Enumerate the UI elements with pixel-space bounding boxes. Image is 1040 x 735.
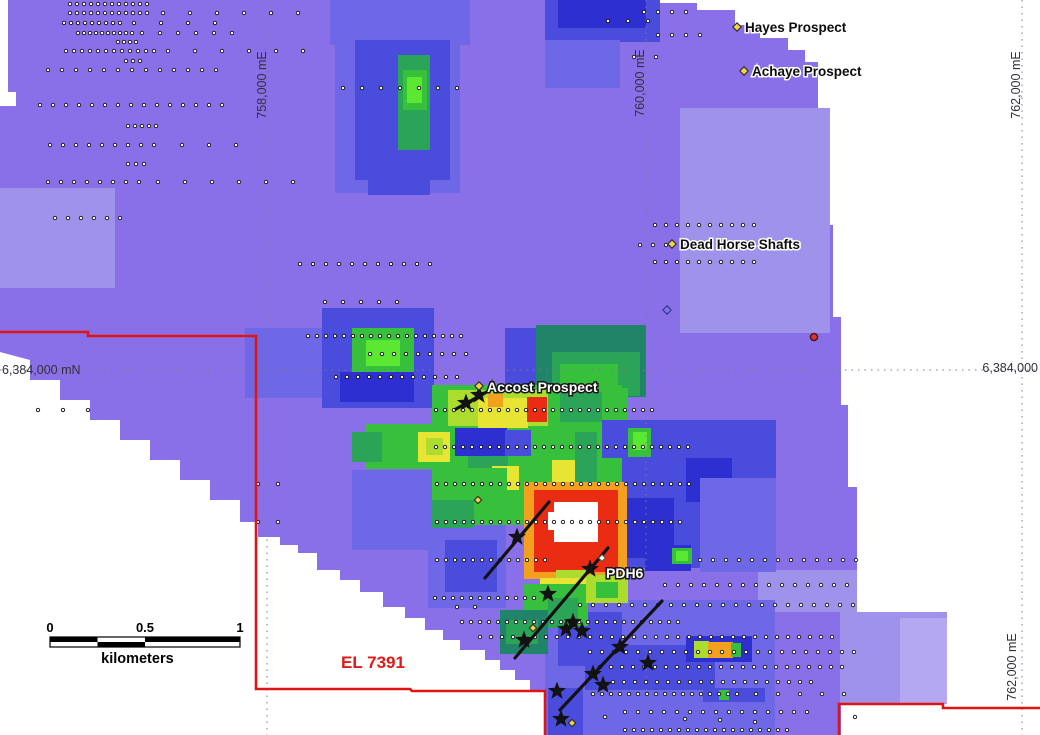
sample-dot xyxy=(752,665,755,668)
sample-dot xyxy=(134,40,137,43)
sample-dot xyxy=(609,665,612,668)
sample-dot xyxy=(643,603,646,606)
sample-dot xyxy=(515,408,518,411)
sample-dot xyxy=(82,31,85,34)
sample-dot xyxy=(627,692,630,695)
sample-dot xyxy=(138,59,141,62)
sample-dot xyxy=(731,635,734,638)
sample-dot xyxy=(124,31,127,34)
sample-dot xyxy=(337,262,340,265)
sample-dot xyxy=(487,596,490,599)
sample-dot xyxy=(432,334,435,337)
sample-dot xyxy=(719,260,722,263)
sample-dot xyxy=(600,650,603,653)
heat-cell xyxy=(245,328,330,398)
sample-dot xyxy=(75,2,78,5)
sample-dot xyxy=(523,596,526,599)
sample-dot xyxy=(682,603,685,606)
sample-dot xyxy=(676,635,679,638)
sample-dot xyxy=(597,482,600,485)
sample-dot xyxy=(678,520,681,523)
sample-dot xyxy=(387,334,390,337)
sample-dot xyxy=(588,482,591,485)
sample-dot xyxy=(578,408,581,411)
sample-dot xyxy=(131,2,134,5)
sample-dot xyxy=(441,334,444,337)
sample-dot xyxy=(525,558,528,561)
sample-dot xyxy=(711,558,714,561)
sample-dot xyxy=(626,19,629,22)
sample-dot xyxy=(624,520,627,523)
sample-dot xyxy=(670,33,673,36)
sample-dot xyxy=(543,520,546,523)
heat-cell xyxy=(602,420,624,458)
sample-dot xyxy=(851,603,854,606)
sample-dot xyxy=(698,635,701,638)
sample-dot xyxy=(807,665,810,668)
sample-dot xyxy=(497,445,500,448)
sample-dot xyxy=(455,605,458,608)
sample-dot xyxy=(641,728,644,731)
heat-cell xyxy=(488,394,503,407)
sample-dot xyxy=(623,728,626,731)
sample-dot xyxy=(741,260,744,263)
sample-dot xyxy=(688,710,691,713)
occurrence-circle-icon xyxy=(810,333,817,340)
sample-dot xyxy=(443,445,446,448)
sample-dot xyxy=(666,680,669,683)
sample-dot xyxy=(90,103,93,106)
sample-dot xyxy=(166,49,169,52)
sample-dot xyxy=(460,620,463,623)
sample-dot xyxy=(695,603,698,606)
sample-dot xyxy=(766,710,769,713)
scalebar-segment xyxy=(98,642,146,647)
sample-dot xyxy=(675,710,678,713)
scalebar-segment xyxy=(145,637,240,642)
sample-dot xyxy=(620,665,623,668)
sample-dot xyxy=(570,482,573,485)
sample-dot xyxy=(695,728,698,731)
sample-dot xyxy=(676,583,679,586)
sample-dot xyxy=(131,59,134,62)
sample-dot xyxy=(234,143,237,146)
sample-dot xyxy=(138,2,141,5)
sample-dot xyxy=(104,49,107,52)
scalebar-tick-label: 0.5 xyxy=(136,620,154,635)
sample-dot xyxy=(207,143,210,146)
sample-dot xyxy=(533,408,536,411)
sample-dot xyxy=(392,352,395,355)
sample-dot xyxy=(154,124,157,127)
sample-dot xyxy=(291,180,294,183)
sample-dot xyxy=(168,103,171,106)
sample-dot xyxy=(51,103,54,106)
sample-dot xyxy=(82,2,85,5)
sample-dot xyxy=(588,650,591,653)
sample-dot xyxy=(46,180,49,183)
sample-dot xyxy=(110,2,113,5)
sample-dot xyxy=(646,19,649,22)
sample-dot xyxy=(708,650,711,653)
map-view: Hayes ProspectAchaye ProspectDead Horse … xyxy=(0,0,1040,735)
sample-dot xyxy=(656,33,659,36)
sample-dot xyxy=(156,180,159,183)
sample-dot xyxy=(632,408,635,411)
sample-dot xyxy=(210,180,213,183)
sample-dot xyxy=(840,665,843,668)
sample-dot xyxy=(591,692,594,695)
sample-dot xyxy=(404,352,407,355)
sample-dot xyxy=(597,520,600,523)
sample-dot xyxy=(436,86,439,89)
sample-dot xyxy=(591,603,594,606)
heat-cell xyxy=(455,428,507,456)
sample-dot xyxy=(570,520,573,523)
sample-dot xyxy=(724,558,727,561)
sample-dot xyxy=(708,223,711,226)
sample-dot xyxy=(489,482,492,485)
sample-dot xyxy=(172,68,175,71)
sample-dot xyxy=(471,482,474,485)
sample-dot xyxy=(488,445,491,448)
heat-cell xyxy=(558,0,646,28)
sample-dot xyxy=(737,558,740,561)
sample-dot xyxy=(416,352,419,355)
sample-dot xyxy=(478,596,481,599)
heat-cell xyxy=(0,188,115,288)
sample-dot xyxy=(799,603,802,606)
sample-dot xyxy=(741,583,744,586)
sample-dot xyxy=(550,620,553,623)
sample-dot xyxy=(534,558,537,561)
heat-cell xyxy=(0,92,16,106)
grid-coordinate-label: 760,000 mE xyxy=(633,49,647,116)
sample-dot xyxy=(194,103,197,106)
sample-dot xyxy=(433,596,436,599)
sample-dot xyxy=(854,558,857,561)
sample-dot xyxy=(129,103,132,106)
sample-dot xyxy=(498,520,501,523)
sample-dot xyxy=(818,665,821,668)
sample-dot xyxy=(105,216,108,219)
scalebar-units-label: kilometers xyxy=(101,651,174,667)
sample-dot xyxy=(773,603,776,606)
heat-cell xyxy=(731,643,741,657)
sample-dot xyxy=(765,680,768,683)
sample-dot xyxy=(819,583,822,586)
sample-dot xyxy=(654,635,657,638)
sample-dot xyxy=(88,49,91,52)
sample-dot xyxy=(451,596,454,599)
sample-dot xyxy=(76,31,79,34)
sample-dot xyxy=(194,31,197,34)
sample-dot xyxy=(113,143,116,146)
sample-dot xyxy=(812,603,815,606)
sample-dot xyxy=(677,728,680,731)
sample-dot xyxy=(815,558,818,561)
sample-dot xyxy=(103,11,106,14)
sample-dot xyxy=(644,680,647,683)
sample-dot xyxy=(130,31,133,34)
sample-dot xyxy=(470,445,473,448)
sample-dot xyxy=(133,124,136,127)
sample-dot xyxy=(134,162,137,165)
sample-dot xyxy=(77,103,80,106)
sample-dot xyxy=(433,375,436,378)
tenement-label: EL 7391 xyxy=(341,653,405,672)
sample-dot xyxy=(606,19,609,22)
sample-dot xyxy=(144,49,147,52)
sample-dot xyxy=(479,408,482,411)
sample-dot xyxy=(701,710,704,713)
sample-dot xyxy=(68,2,71,5)
sample-dot xyxy=(622,680,625,683)
sample-dot xyxy=(710,680,713,683)
sample-dot xyxy=(496,620,499,623)
sample-dot xyxy=(569,445,572,448)
sample-dot xyxy=(97,21,100,24)
sample-dot xyxy=(819,635,822,638)
sample-dot xyxy=(124,59,127,62)
sample-dot xyxy=(405,334,408,337)
sample-dot xyxy=(59,180,62,183)
sample-dot xyxy=(816,650,819,653)
sample-dot xyxy=(116,103,119,106)
sample-dot xyxy=(435,558,438,561)
sample-dot xyxy=(478,620,481,623)
sample-dot xyxy=(88,68,91,71)
sample-dot xyxy=(756,650,759,653)
sample-dot xyxy=(138,11,141,14)
sample-dot xyxy=(708,260,711,263)
sample-dot xyxy=(752,223,755,226)
sample-dot xyxy=(96,2,99,5)
sample-dot xyxy=(596,408,599,411)
sample-dot xyxy=(422,375,425,378)
sample-dot xyxy=(792,710,795,713)
sample-dot xyxy=(363,262,366,265)
sample-dot xyxy=(142,103,145,106)
sample-dot xyxy=(473,605,476,608)
sample-dot xyxy=(650,728,653,731)
sample-dot xyxy=(727,710,730,713)
heat-cell xyxy=(352,470,432,550)
sample-dot xyxy=(69,21,72,24)
sample-dot xyxy=(514,620,517,623)
sample-dot xyxy=(560,408,563,411)
sample-dot xyxy=(632,728,635,731)
sample-dot xyxy=(435,482,438,485)
sample-dot xyxy=(605,445,608,448)
sample-dot xyxy=(83,21,86,24)
heat-cell xyxy=(545,40,620,88)
sample-dot xyxy=(730,665,733,668)
sample-dot xyxy=(126,162,129,165)
sample-dot xyxy=(660,482,663,485)
sample-dot xyxy=(622,620,625,623)
sample-dot xyxy=(806,583,809,586)
heat-cell xyxy=(560,392,602,422)
sample-dot xyxy=(721,603,724,606)
sample-dot xyxy=(505,620,508,623)
heat-cell xyxy=(596,582,618,598)
sample-dot xyxy=(614,445,617,448)
sample-dot xyxy=(684,10,687,13)
sample-dot xyxy=(350,262,353,265)
sample-dot xyxy=(276,482,279,485)
sample-dot xyxy=(543,482,546,485)
sample-dot xyxy=(207,103,210,106)
sample-dot xyxy=(804,650,807,653)
sample-dot xyxy=(678,482,681,485)
sample-dot xyxy=(324,334,327,337)
scalebar-tick-label: 0 xyxy=(46,620,53,635)
sample-dot xyxy=(126,124,129,127)
sample-dot xyxy=(453,558,456,561)
sample-dot xyxy=(760,603,763,606)
sample-dot xyxy=(417,86,420,89)
sample-dot xyxy=(732,650,735,653)
sample-dot xyxy=(100,31,103,34)
sample-dot xyxy=(659,728,662,731)
sample-dot xyxy=(542,408,545,411)
sample-dot xyxy=(124,2,127,5)
sample-dot xyxy=(96,49,99,52)
sample-dot xyxy=(53,216,56,219)
sample-dot xyxy=(145,11,148,14)
sample-dot xyxy=(852,650,855,653)
sample-dot xyxy=(464,352,467,355)
sample-dot xyxy=(274,49,277,52)
sample-dot xyxy=(653,223,656,226)
sample-dot xyxy=(496,596,499,599)
sample-dot xyxy=(301,49,304,52)
sample-dot xyxy=(434,408,437,411)
sample-dot xyxy=(85,180,88,183)
sample-dot xyxy=(36,408,39,411)
sample-dot xyxy=(516,482,519,485)
sample-dot xyxy=(789,558,792,561)
sample-dot xyxy=(841,558,844,561)
sample-dot xyxy=(72,180,75,183)
sample-dot xyxy=(104,21,107,24)
sample-dot xyxy=(676,620,679,623)
sample-dot xyxy=(753,635,756,638)
sample-dot xyxy=(158,68,161,71)
sample-dot xyxy=(389,262,392,265)
sample-dot xyxy=(617,603,620,606)
sample-dot xyxy=(588,520,591,523)
sample-dot xyxy=(116,40,119,43)
sample-dot xyxy=(106,31,109,34)
sample-dot xyxy=(611,680,614,683)
sample-dot xyxy=(469,620,472,623)
sample-dot xyxy=(471,520,474,523)
sample-dot xyxy=(797,635,800,638)
sample-dot xyxy=(88,31,91,34)
sample-dot xyxy=(102,68,105,71)
sample-dot xyxy=(434,445,437,448)
grid-coordinate-label: 762,000 mE xyxy=(1009,51,1023,118)
sample-dot xyxy=(631,620,634,623)
sample-dot xyxy=(609,692,612,695)
sample-dot xyxy=(588,635,591,638)
sample-dot xyxy=(377,300,380,303)
sample-dot xyxy=(741,223,744,226)
sample-dot xyxy=(188,11,191,14)
sample-dot xyxy=(802,558,805,561)
sample-dot xyxy=(853,715,856,718)
sample-dot xyxy=(752,260,755,263)
sample-dot xyxy=(161,11,164,14)
sample-dot xyxy=(664,223,667,226)
sample-dot xyxy=(92,216,95,219)
sample-dot xyxy=(60,68,63,71)
sample-dot xyxy=(525,520,528,523)
heat-cell xyxy=(708,642,733,658)
sample-dot xyxy=(744,650,747,653)
sample-dot xyxy=(118,216,121,219)
sample-dot xyxy=(719,665,722,668)
sample-dot xyxy=(351,334,354,337)
sample-dot xyxy=(730,223,733,226)
sample-dot xyxy=(603,715,606,718)
sample-dot xyxy=(516,558,519,561)
sample-dot xyxy=(740,710,743,713)
sample-dot xyxy=(776,728,779,731)
sample-dot xyxy=(506,445,509,448)
sample-dot xyxy=(469,596,472,599)
sample-dot xyxy=(500,635,503,638)
sample-dot xyxy=(641,445,644,448)
sample-dot xyxy=(665,635,668,638)
sample-dot xyxy=(776,680,779,683)
sample-dot xyxy=(579,520,582,523)
sample-dot xyxy=(664,665,667,668)
sample-dot xyxy=(663,692,666,695)
map-canvas[interactable]: Hayes ProspectAchaye ProspectDead Horse … xyxy=(0,0,1040,735)
sample-dot xyxy=(659,445,662,448)
sample-dot xyxy=(552,520,555,523)
sample-dot xyxy=(610,635,613,638)
sample-dot xyxy=(828,650,831,653)
sample-dot xyxy=(444,375,447,378)
sample-dot xyxy=(636,650,639,653)
sample-dot xyxy=(80,49,83,52)
sample-dot xyxy=(779,710,782,713)
sample-dot xyxy=(237,180,240,183)
sample-dot xyxy=(103,103,106,106)
sample-dot xyxy=(395,300,398,303)
sample-dot xyxy=(767,583,770,586)
sample-dot xyxy=(544,635,547,638)
pdh6-label: PDH6 xyxy=(606,565,644,581)
sample-dot xyxy=(675,223,678,226)
sample-dot xyxy=(796,665,799,668)
sample-dot xyxy=(633,482,636,485)
sample-dot xyxy=(86,408,89,411)
sample-dot xyxy=(459,334,462,337)
sample-dot xyxy=(618,692,621,695)
sample-dot xyxy=(87,143,90,146)
hayes-label: Hayes Prospect xyxy=(745,20,847,35)
sample-dot xyxy=(543,558,546,561)
sample-dot xyxy=(630,603,633,606)
sample-dot xyxy=(389,375,392,378)
sample-dot xyxy=(686,445,689,448)
sample-dot xyxy=(230,31,233,34)
